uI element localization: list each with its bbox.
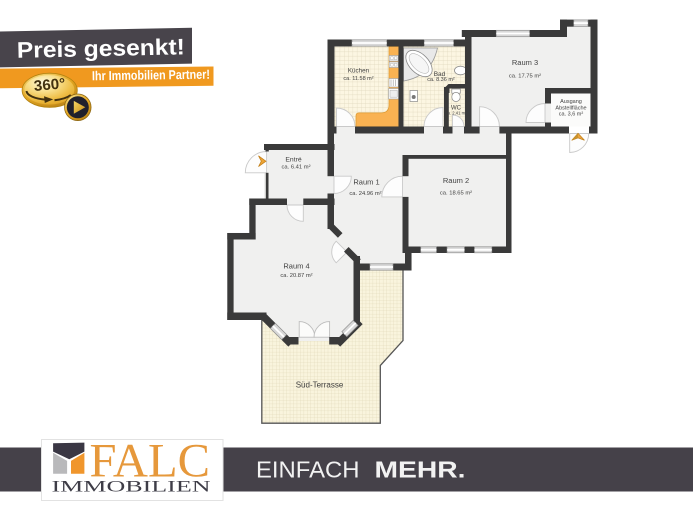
svg-text:ca. 17.75 m²: ca. 17.75 m² (509, 73, 541, 79)
svg-text:Raum 1: Raum 1 (353, 177, 379, 186)
svg-text:EINFACH: EINFACH (256, 457, 360, 483)
svg-text:ca. 20.87 m²: ca. 20.87 m² (280, 273, 312, 279)
svg-text:Raum 3: Raum 3 (512, 58, 538, 67)
svg-text:ca. 3,6 m²: ca. 3,6 m² (559, 112, 584, 118)
svg-text:ca. 8.36 m²: ca. 8.36 m² (427, 77, 455, 83)
svg-text:Küchen: Küchen (348, 68, 370, 75)
svg-text:ca. 18.65 m²: ca. 18.65 m² (440, 191, 472, 197)
svg-text:Ihr Immobilien Partner!: Ihr Immobilien Partner! (92, 67, 210, 84)
svg-text:IMMOBILIEN: IMMOBILIEN (52, 479, 212, 496)
svg-text:Raum 2: Raum 2 (443, 176, 469, 185)
svg-text:Ausgang: Ausgang (560, 99, 582, 105)
svg-text:ca. 11.58 m²: ca. 11.58 m² (343, 76, 373, 82)
svg-text:ca. 6.41 m²: ca. 6.41 m² (282, 165, 311, 171)
svg-text:Entré: Entré (285, 157, 301, 164)
svg-text:Süd-Terrasse: Süd-Terrasse (296, 381, 344, 390)
svg-text:MEHR.: MEHR. (375, 457, 466, 483)
svg-text:360°: 360° (33, 75, 66, 95)
svg-text:Preis gesenkt!: Preis gesenkt! (17, 34, 185, 63)
svg-text:ca. 2.41 m²: ca. 2.41 m² (446, 110, 468, 115)
svg-text:ca. 24.96 m²: ca. 24.96 m² (349, 191, 381, 197)
svg-text:Raum 4: Raum 4 (283, 261, 309, 270)
